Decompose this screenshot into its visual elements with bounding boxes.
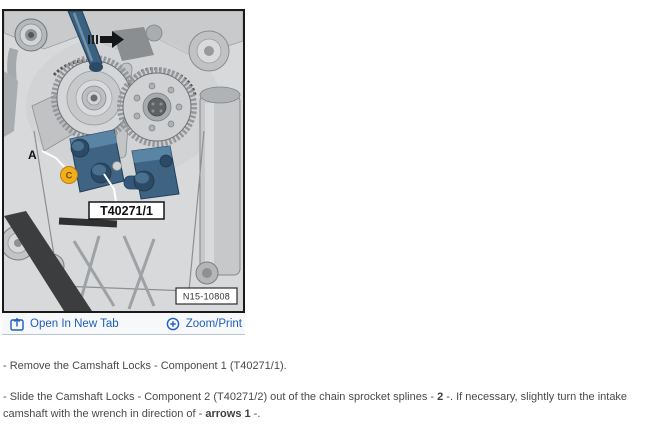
step-1-text: - Remove the Camshaft Locks - Component … (3, 360, 287, 372)
figure-panel: C A T40271/1 N15-10808 Open In New Ta (2, 9, 245, 335)
figure-toolbar: Open In New Tab Zoom/Print (2, 313, 245, 335)
engine-background (4, 11, 243, 311)
figure-code-text: N15-10808 (183, 292, 230, 302)
figure-code-box: N15-10808 (176, 288, 237, 304)
tool-label-box: T40271/1 (89, 202, 164, 219)
zoom-print-label: Zoom/Print (186, 318, 242, 330)
zoom-print-icon (166, 317, 180, 331)
step-2-segment: - Slide the Camshaft Locks - Component 2… (3, 391, 437, 403)
instructions: - Remove the Camshaft Locks - Component … (0, 358, 650, 423)
open-in-new-tab-icon (10, 317, 24, 331)
open-in-new-tab-label: Open In New Tab (30, 318, 119, 330)
camshaft-lock-1 (70, 130, 124, 192)
instruction-step-1: - Remove the Camshaft Locks - Component … (3, 358, 645, 375)
engine-diagram: C A T40271/1 N15-10808 (2, 9, 245, 313)
marker-c-glyph: C (66, 171, 73, 181)
marker-c: C (61, 167, 78, 184)
instruction-step-2: - Slide the Camshaft Locks - Component 2… (3, 389, 645, 423)
zoom-print-link[interactable]: Zoom/Print (166, 317, 242, 331)
step-2-segment: -. (251, 408, 261, 420)
step-2-bold-arrows-1: arrows 1 (205, 408, 250, 420)
open-in-new-tab-link[interactable]: Open In New Tab (10, 317, 119, 331)
tool-label-text: T40271/1 (100, 204, 153, 218)
engine-illustration: C A T40271/1 N15-10808 (4, 11, 243, 311)
page: { "figure": { "diagram": { "label_a": "A… (0, 0, 650, 424)
label-a: A (28, 148, 37, 162)
